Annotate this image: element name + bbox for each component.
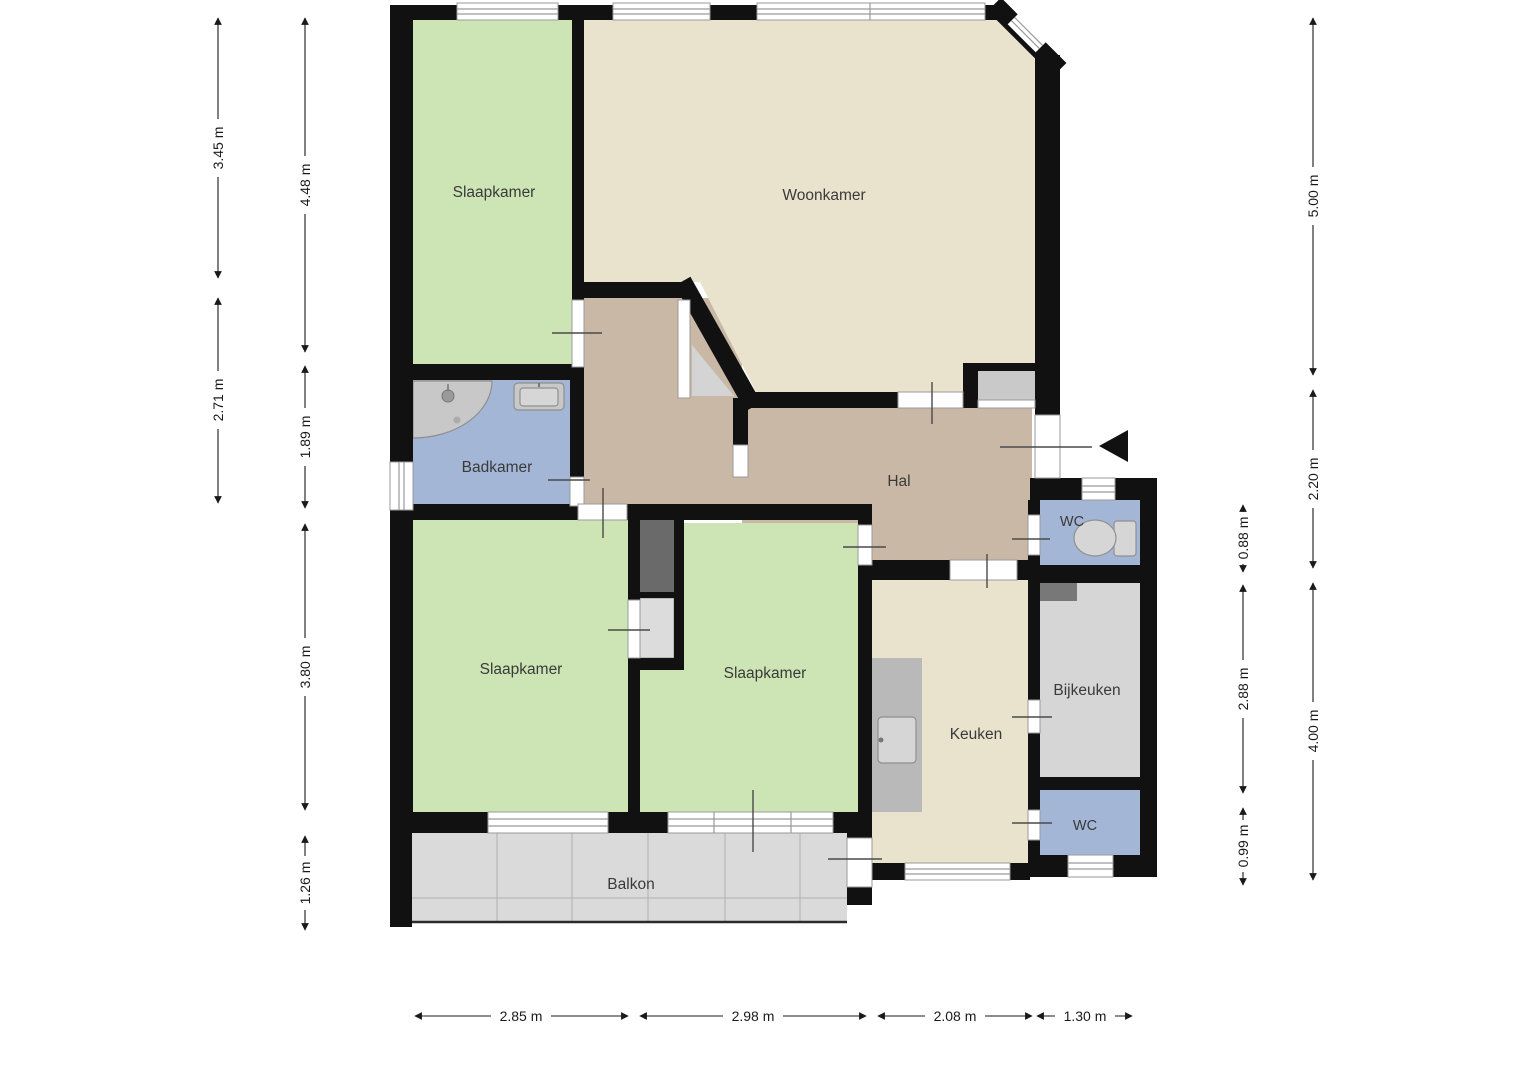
wall-segment [1035,565,1140,583]
wall-segment [1140,478,1157,877]
shower-drain-icon [454,417,461,424]
kitchen-sink-icon [878,717,916,763]
door-opening [978,400,1035,408]
window [613,3,710,20]
room-label-balkon: Balkon [607,876,654,893]
dimension-label: 1.89 m [297,416,313,459]
door-opening [847,838,872,887]
wall-segment [733,398,748,445]
dimension-label: 1.30 m [1064,1008,1107,1024]
room-label-wc-1: WC [1060,514,1084,530]
dimension-label: 2.20 m [1305,458,1321,501]
floor-plan-page: Slaapkamer Woonkamer Badkamer Hal WC Sla… [0,0,1527,1080]
room-label-woonkamer: Woonkamer [782,187,865,204]
door-opening [628,600,640,658]
wall-segment [1035,55,1060,415]
room-label-keuken: Keuken [950,726,1003,743]
window [1082,478,1115,500]
wall-segment [748,392,898,408]
room-label-badkamer: Badkamer [462,459,533,476]
dimension-label: 2.98 m [732,1008,775,1024]
room-label-bijkeuken: Bijkeuken [1053,682,1120,699]
sink-basin [520,388,558,406]
room-label-hal: Hal [887,473,910,490]
entrance-arrow-icon [1099,430,1128,462]
door-opening [570,477,584,506]
dimension-label: 0.99 m [1235,825,1251,868]
dimension-label: 3.45 m [210,127,226,170]
window [457,3,558,20]
dimension-label: 2.71 m [210,379,226,422]
kitchen-tap-icon [879,738,884,743]
dimension-label: 2.08 m [934,1008,977,1024]
shower-head-icon [442,390,454,402]
door-opening [733,445,748,477]
dimension-label: 2.88 m [1235,668,1251,711]
dimension-label: 5.00 m [1305,175,1321,218]
door-opening [898,392,963,408]
window [668,812,833,833]
wall-segment [978,363,1035,371]
door-opening [858,525,872,565]
door-opening [950,560,1017,580]
wall-segment [584,282,690,298]
shelf [1037,583,1077,601]
dimension-label: 4.48 m [297,164,313,207]
wall-segment [390,364,584,380]
door-opening [678,300,690,398]
wall-segment [963,363,978,408]
floor-plan: Slaapkamer Woonkamer Badkamer Hal WC Sla… [0,0,1527,1080]
shaft [640,520,674,592]
room-label-slaapkamer-2: Slaapkamer [480,661,563,678]
dimension-label: 3.80 m [297,646,313,689]
room-bijkeuken [1035,583,1140,777]
wall-segment [674,520,684,670]
dimension-label: 0.88 m [1235,517,1251,560]
window [488,812,608,833]
dimension-label: 1.26 m [297,862,313,905]
wall-segment [1035,777,1140,790]
closet [640,598,674,658]
wall-segment [390,833,412,927]
wall-segment [572,19,584,300]
window [1068,855,1113,877]
window [757,3,985,20]
toilet-tank-icon [1114,521,1136,556]
wall-segment [640,592,674,598]
room-label-slaapkamer-3: Slaapkamer [724,665,807,682]
window [390,462,413,510]
wall-segment [390,5,413,833]
room-label-wc-2: WC [1073,818,1097,834]
wall-segment [628,517,640,812]
door-opening [1028,810,1040,840]
door-opening [1028,515,1040,555]
window [905,863,1010,880]
room-label-slaapkamer-1: Slaapkamer [453,184,536,201]
dimension-label: 4.00 m [1305,710,1321,753]
dimension-label: 2.85 m [500,1008,543,1024]
interior-window-sill [978,371,1035,400]
wall-segment [640,658,674,670]
